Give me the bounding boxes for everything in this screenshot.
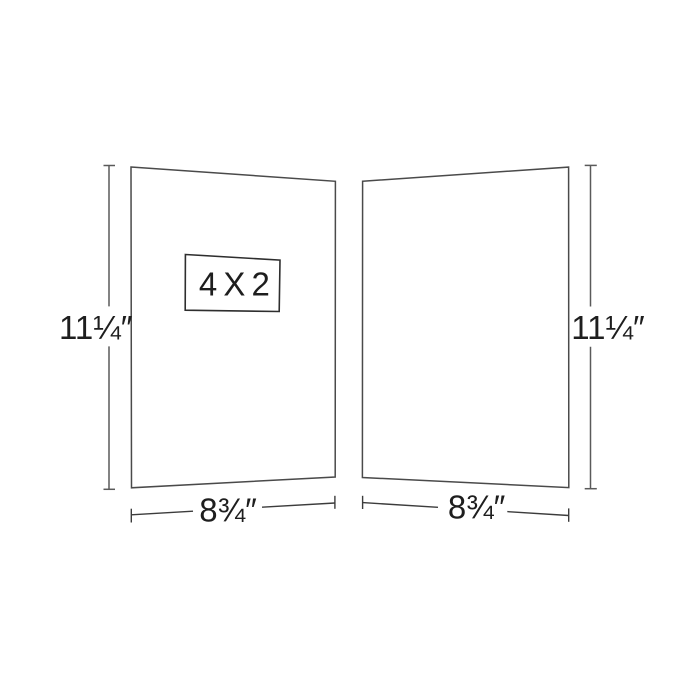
svg-text:11¼″: 11¼″	[571, 309, 645, 346]
svg-text:8¾″: 8¾″	[199, 492, 257, 529]
svg-text:11¼″: 11¼″	[59, 309, 133, 346]
svg-text:4 X 2: 4 X 2	[199, 265, 269, 302]
svg-text:8¾″: 8¾″	[448, 489, 506, 526]
